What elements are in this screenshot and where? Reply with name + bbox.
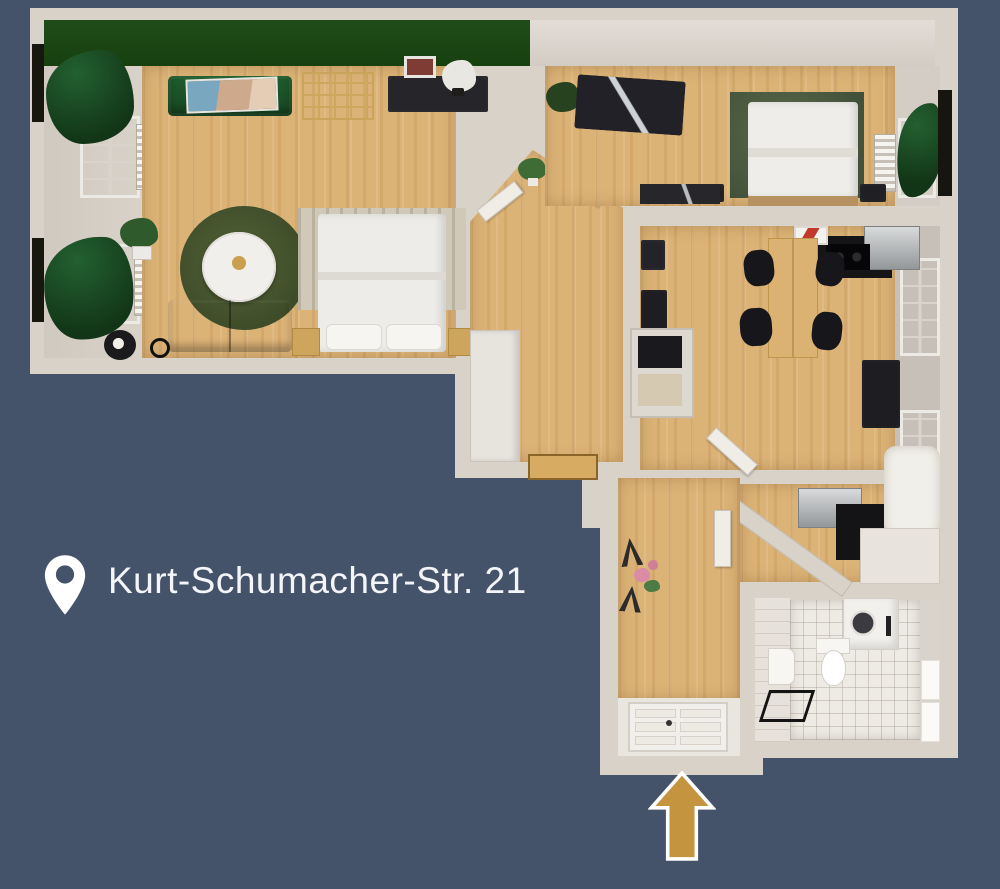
kitchen-window-1 bbox=[900, 258, 940, 356]
small-room-shelf bbox=[860, 528, 940, 584]
spiral-decor bbox=[150, 338, 170, 358]
door-panel bbox=[635, 736, 676, 745]
curtain-1 bbox=[46, 50, 134, 144]
dining-chair-1 bbox=[742, 249, 776, 288]
paper-holder bbox=[886, 616, 891, 636]
location-pin-icon bbox=[42, 552, 88, 618]
white-plant-pot bbox=[452, 88, 464, 96]
bedroom-daybed bbox=[574, 74, 686, 135]
dining-table bbox=[768, 238, 818, 358]
sink bbox=[768, 648, 795, 685]
door-panel bbox=[680, 722, 721, 731]
door-knob bbox=[666, 720, 672, 726]
dining-chair-3 bbox=[739, 307, 774, 347]
entrance-arrow-icon bbox=[648, 770, 716, 862]
bedroom-window-reveal bbox=[938, 90, 952, 196]
plant-stand bbox=[132, 246, 152, 260]
nightstand-1 bbox=[292, 328, 320, 356]
living-bed-fold bbox=[318, 272, 446, 280]
living-sofa bbox=[168, 300, 292, 352]
entry-door bbox=[628, 702, 728, 752]
door-bathroom bbox=[714, 510, 731, 567]
potted-plant bbox=[120, 218, 158, 248]
door-panel bbox=[680, 736, 721, 745]
window-reveal-2 bbox=[32, 238, 44, 322]
floor-lamp bbox=[104, 330, 136, 360]
address-label: Kurt-Schumacher-Str. 21 bbox=[108, 560, 527, 602]
hallway-closet bbox=[470, 330, 520, 462]
door-panel bbox=[680, 709, 721, 718]
hallway-plant bbox=[518, 158, 546, 180]
bedroom-headboard bbox=[748, 196, 858, 206]
bed-pillow-2 bbox=[386, 324, 442, 350]
serving-hatch-opening bbox=[638, 336, 682, 368]
entrance-flowers-green bbox=[644, 580, 660, 592]
window-reveal-1 bbox=[32, 44, 44, 122]
washing-machine-door bbox=[850, 610, 876, 636]
kitchen-stainless-unit bbox=[864, 226, 920, 270]
bedroom-nightstand-2 bbox=[860, 184, 886, 202]
bed-pillow-1 bbox=[326, 324, 382, 350]
address-overlay: Kurt-Schumacher-Str. 21 bbox=[42, 552, 527, 618]
bedroom-top-wall bbox=[530, 20, 935, 66]
bathroom-window-1 bbox=[921, 660, 940, 700]
door-panel bbox=[635, 709, 676, 718]
kitchen-cabinet-1 bbox=[641, 240, 665, 270]
wall-picture-frame bbox=[404, 56, 436, 78]
bedroom-bed-fold bbox=[748, 148, 858, 157]
serving-hatch-shelf bbox=[638, 374, 682, 406]
small-room-bed bbox=[884, 446, 940, 538]
floor-hatch bbox=[528, 454, 598, 480]
toilet-bowl bbox=[821, 650, 846, 686]
floorplan-scene: Kurt-Schumacher-Str. 21 bbox=[0, 0, 1000, 889]
kitchen-sideboard bbox=[862, 360, 900, 428]
hallway-plant-pot bbox=[528, 178, 538, 186]
bedroom-desk bbox=[640, 184, 720, 204]
clothes-rack bbox=[302, 72, 374, 120]
bathroom-window-2 bbox=[921, 702, 940, 742]
coffee-table-decor bbox=[232, 256, 246, 270]
entrance-flowers-pink-2 bbox=[648, 560, 658, 570]
artwork-on-bench bbox=[185, 76, 278, 113]
